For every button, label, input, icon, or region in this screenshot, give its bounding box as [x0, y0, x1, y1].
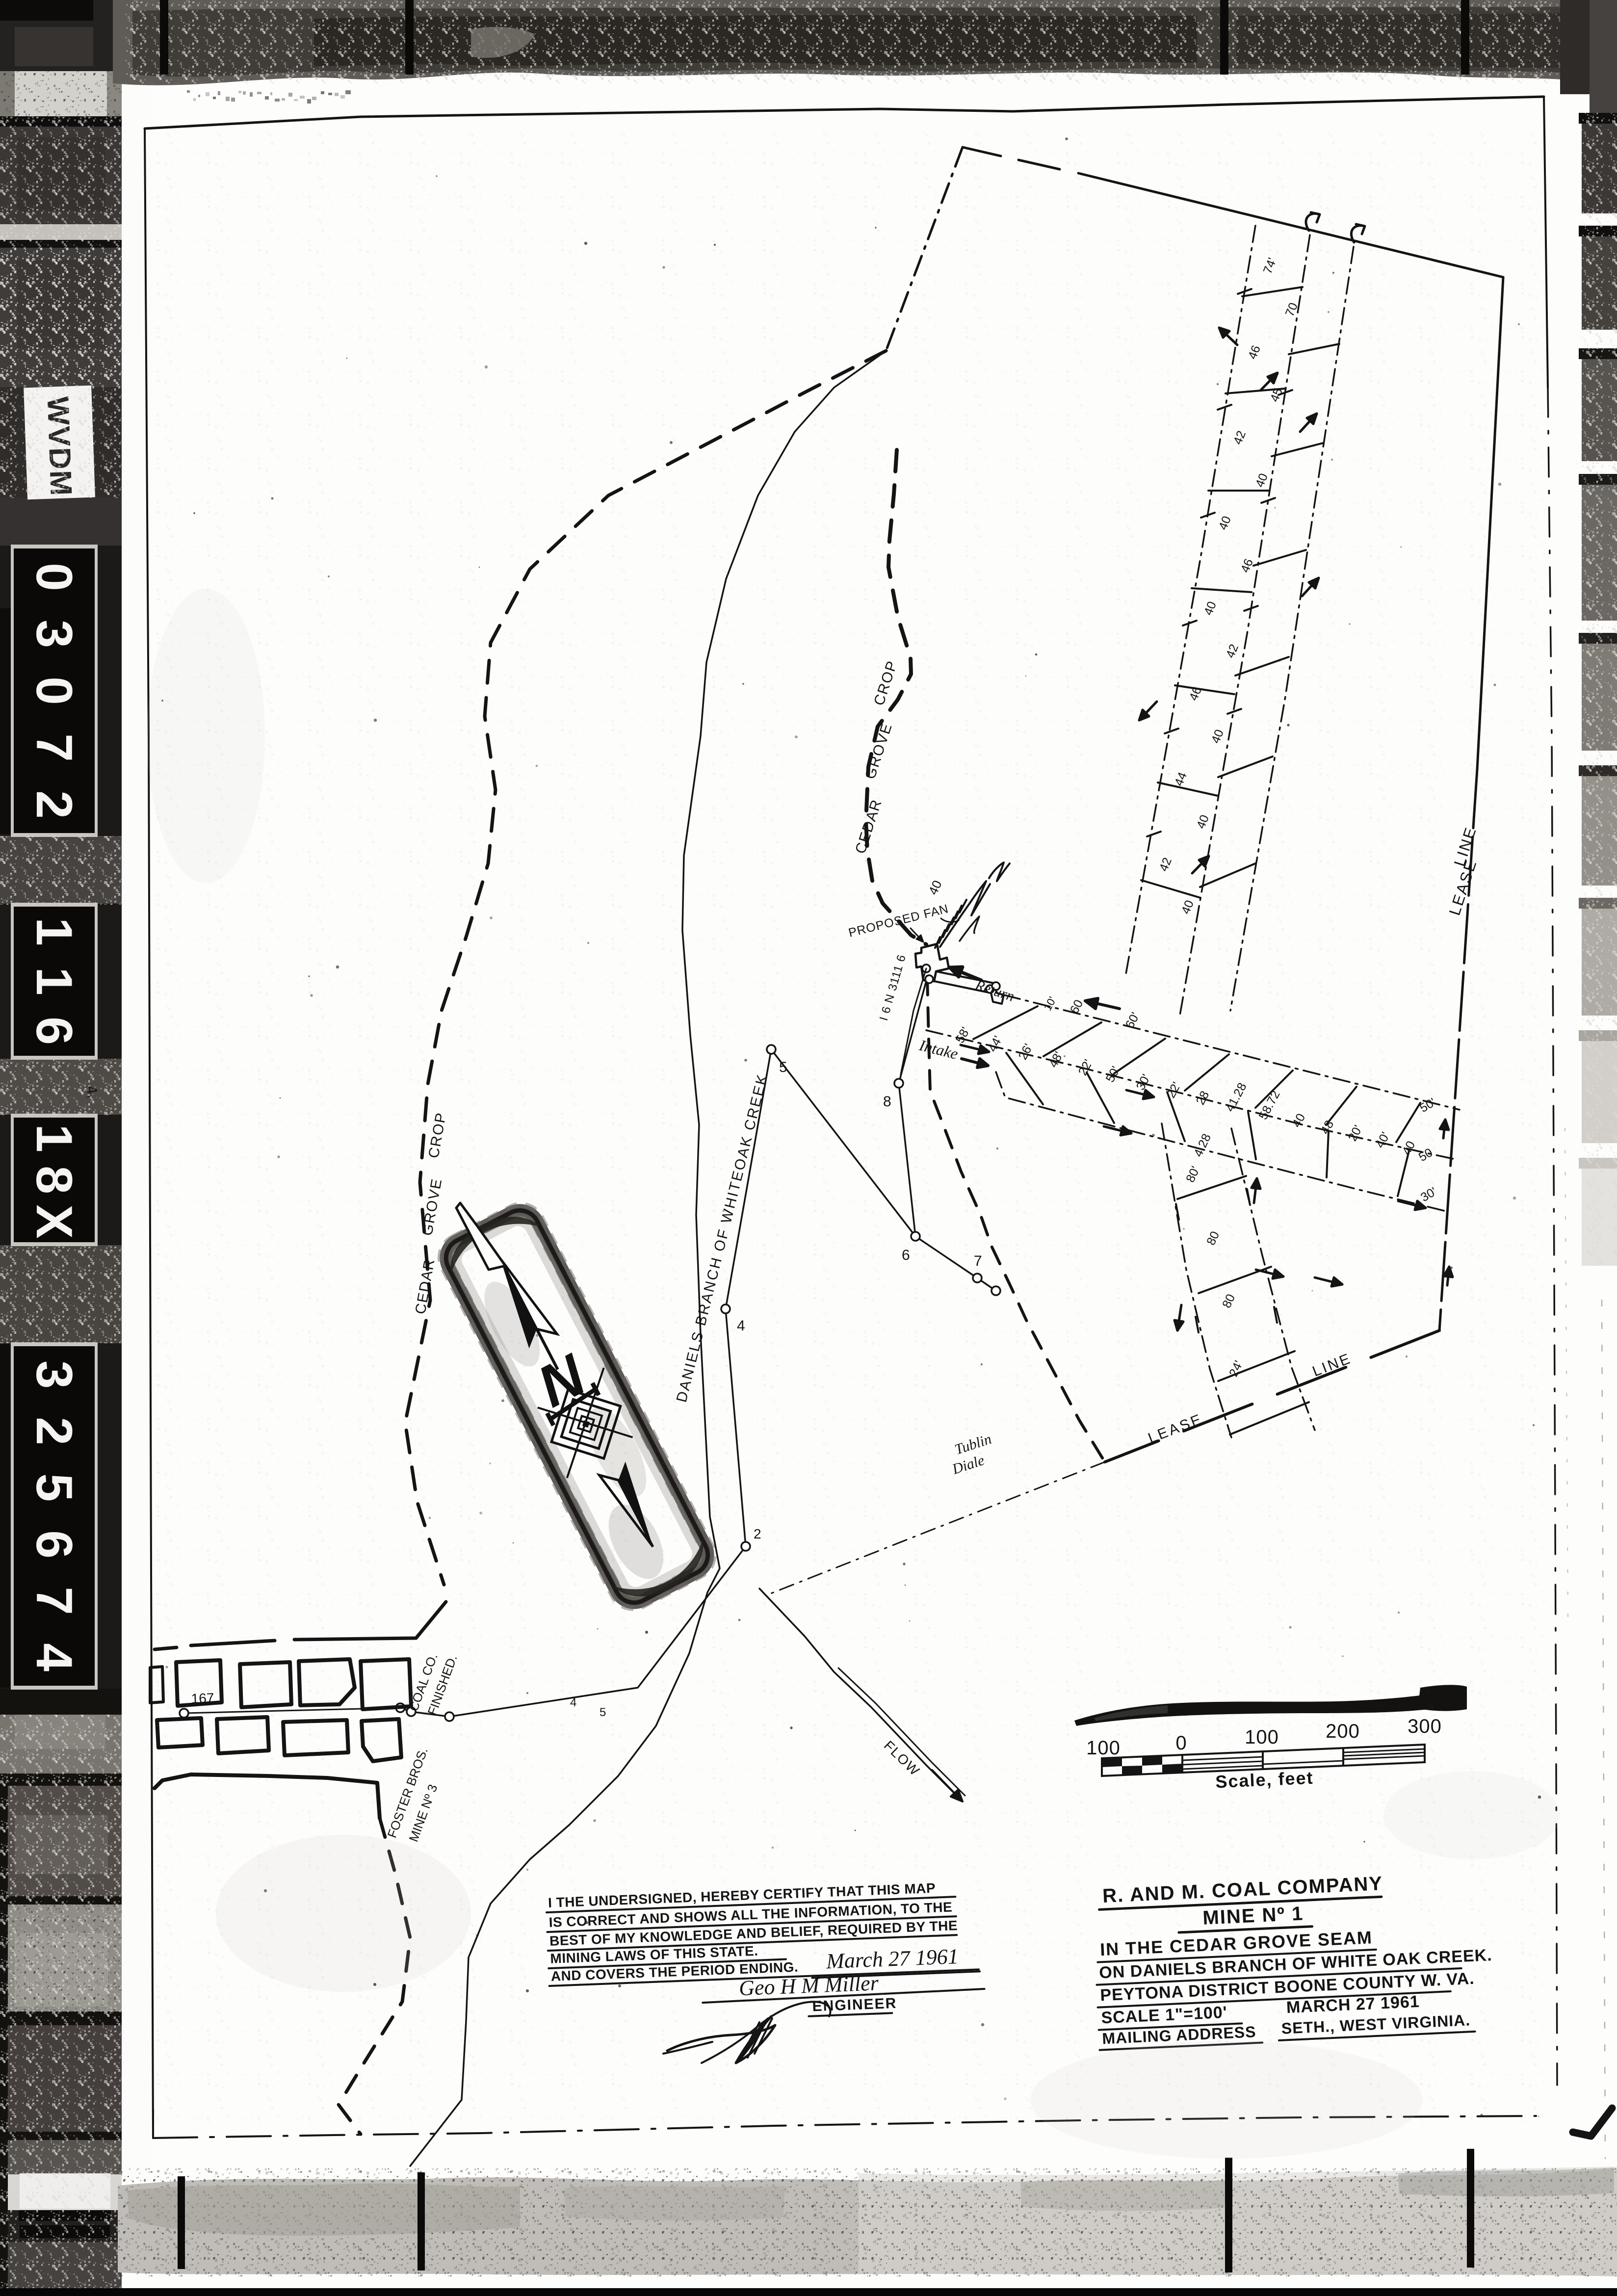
svg-text:6: 6 [26, 1017, 82, 1045]
svg-text:5: 5 [26, 1473, 82, 1502]
svg-text:7: 7 [26, 1587, 82, 1615]
svg-text:4: 4 [26, 1643, 82, 1671]
svg-text:X: X [26, 1204, 82, 1238]
svg-text:7: 7 [26, 733, 82, 762]
svg-text:1: 1 [26, 1124, 82, 1152]
svg-text:2: 2 [26, 1417, 82, 1445]
svg-text:2: 2 [26, 790, 82, 819]
svg-text:1: 1 [26, 917, 82, 946]
svg-text:0: 0 [26, 677, 82, 705]
svg-text:6: 6 [26, 1530, 82, 1559]
svg-text:8: 8 [26, 1166, 82, 1194]
svg-text:0: 0 [26, 563, 82, 591]
svg-text:3: 3 [26, 1360, 82, 1389]
svg-text:1: 1 [26, 967, 82, 995]
svg-text:3: 3 [26, 620, 82, 648]
